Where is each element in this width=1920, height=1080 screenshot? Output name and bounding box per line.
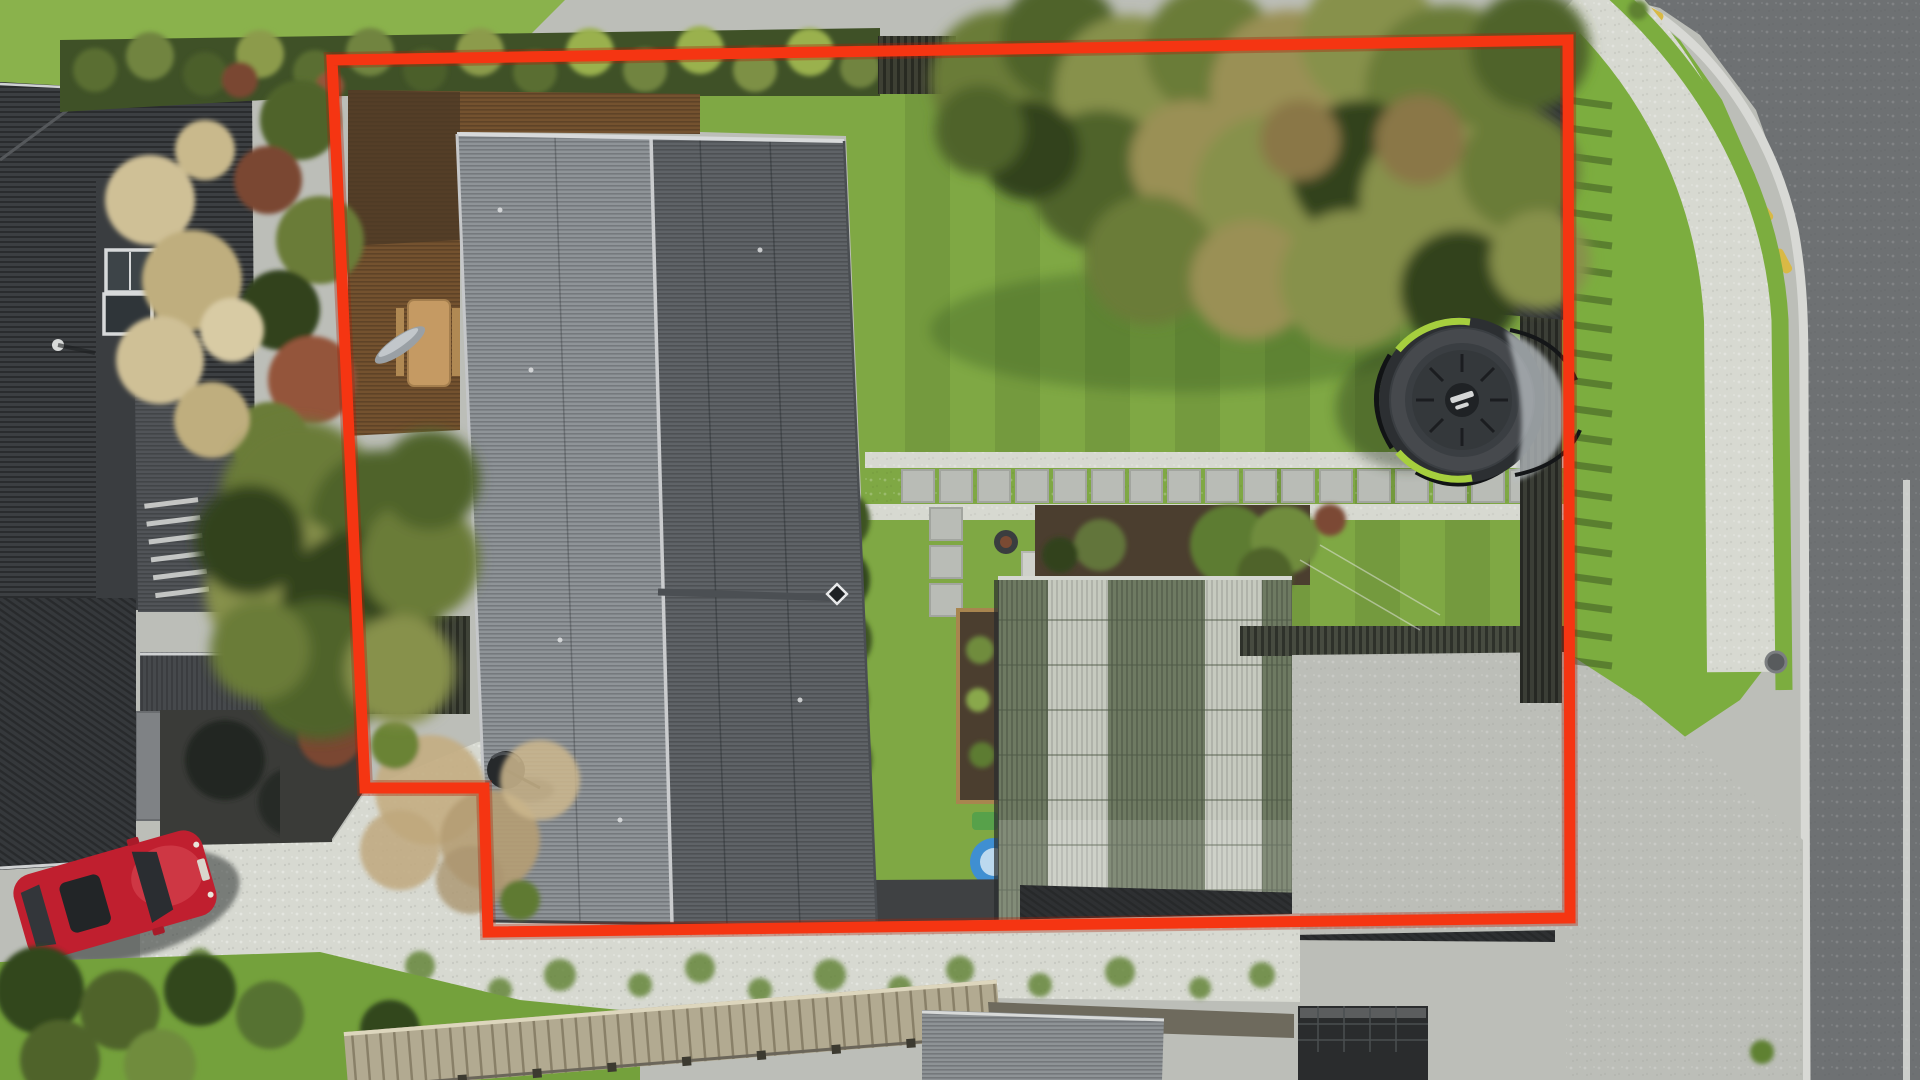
aerial-photo-stage: [0, 0, 1920, 1080]
neighbor-roof-south-texture: [0, 598, 136, 870]
lane-line: [1903, 480, 1910, 1080]
back-fence-gate-palings: [1240, 626, 1566, 656]
deck-shade: [348, 90, 460, 246]
garage-wall-shadow: [994, 580, 999, 948]
yard-stain: [185, 720, 265, 800]
neighbor-garage-door: [136, 712, 164, 820]
fire-pit-inner: [1000, 536, 1012, 548]
manhole-cover: [1766, 652, 1786, 672]
trailer: [1298, 1006, 1428, 1080]
outbuilding-roof: [922, 1010, 1164, 1080]
aerial-photo: [0, 0, 1920, 1080]
left-tree: [195, 420, 480, 740]
verge-weed: [1750, 1040, 1774, 1064]
verge-weed-2: [1628, 0, 1648, 20]
